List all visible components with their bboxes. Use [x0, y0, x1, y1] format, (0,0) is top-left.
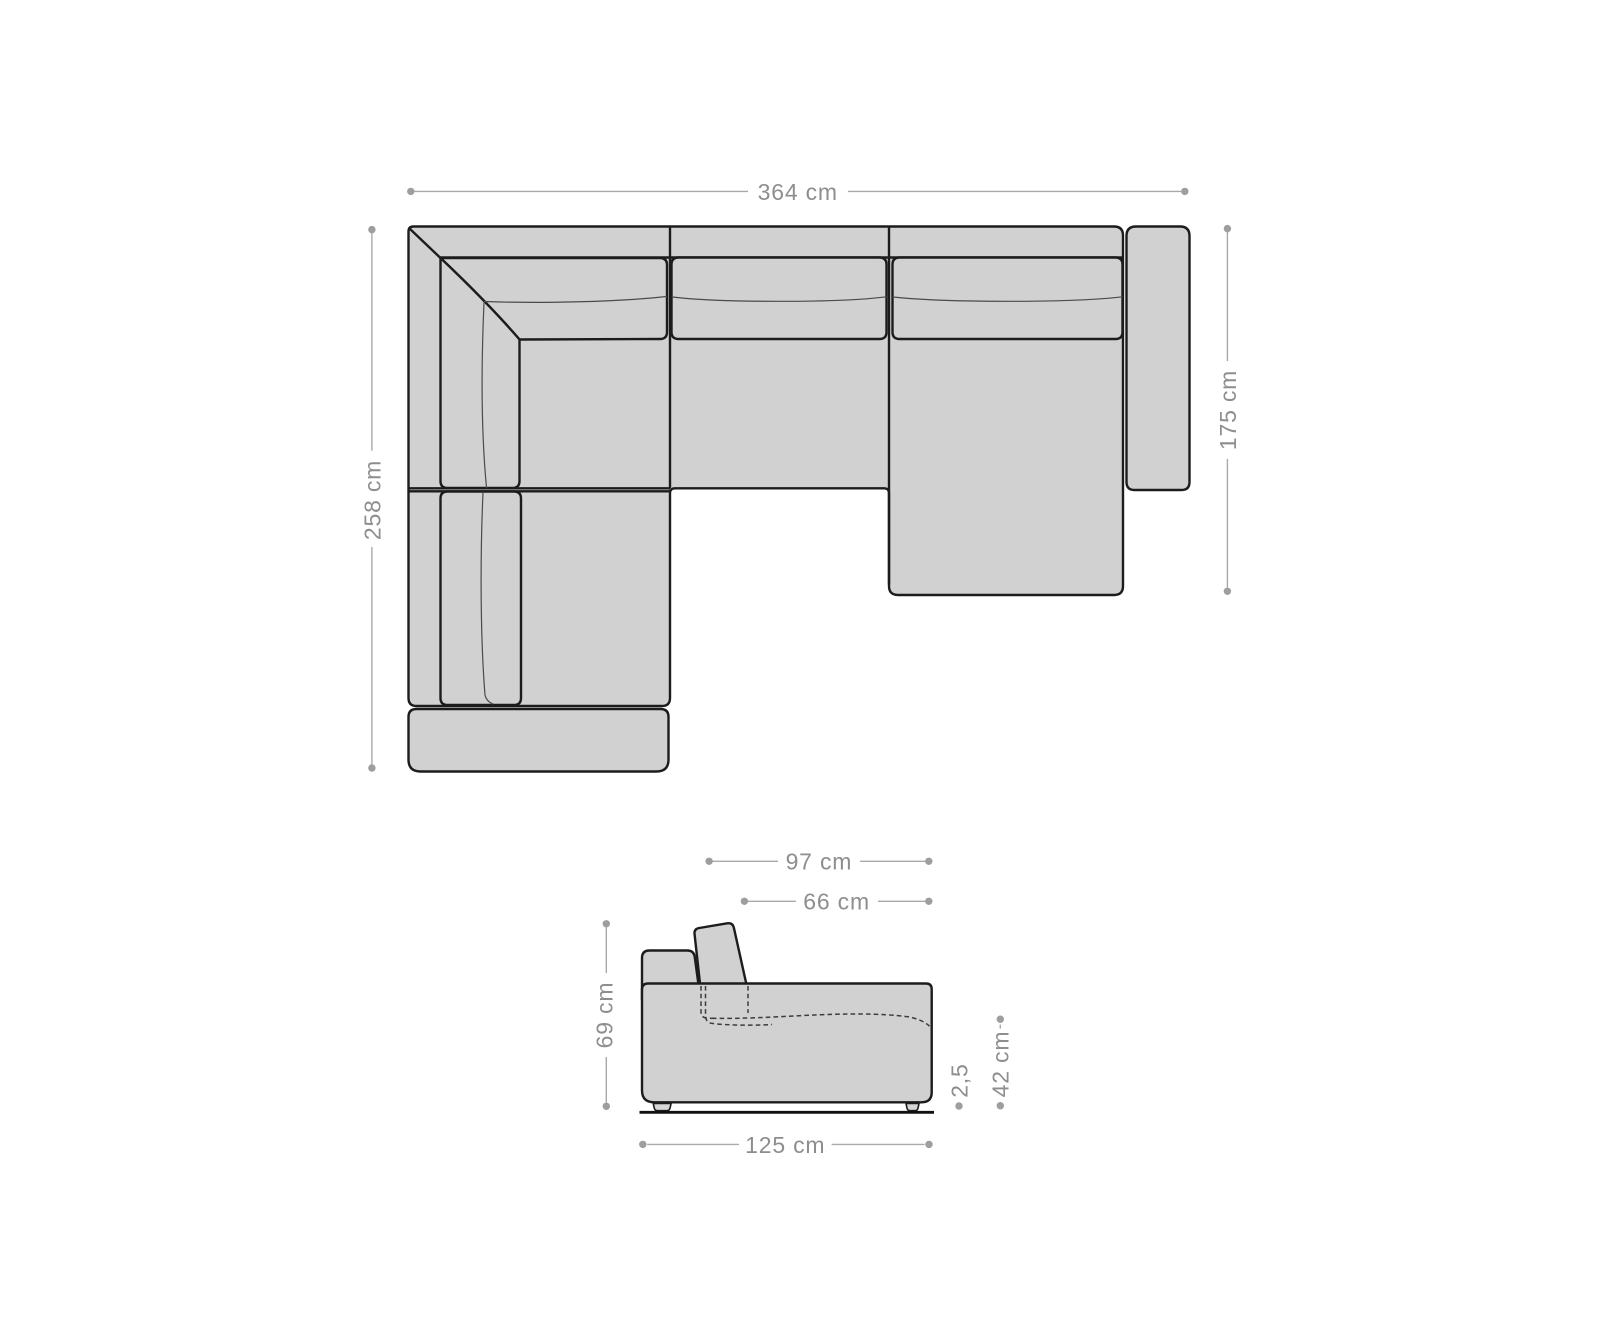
- svg-text:364 cm: 364 cm: [758, 179, 838, 205]
- svg-text:2,5: 2,5: [946, 1063, 972, 1097]
- svg-text:258 cm: 258 cm: [359, 460, 385, 540]
- svg-text:42 cm: 42 cm: [988, 1031, 1014, 1098]
- svg-text:125 cm: 125 cm: [745, 1132, 825, 1158]
- svg-text:175 cm: 175 cm: [1215, 370, 1241, 450]
- svg-text:97 cm: 97 cm: [786, 849, 853, 875]
- svg-text:69 cm: 69 cm: [592, 982, 618, 1049]
- svg-text:66 cm: 66 cm: [803, 889, 870, 915]
